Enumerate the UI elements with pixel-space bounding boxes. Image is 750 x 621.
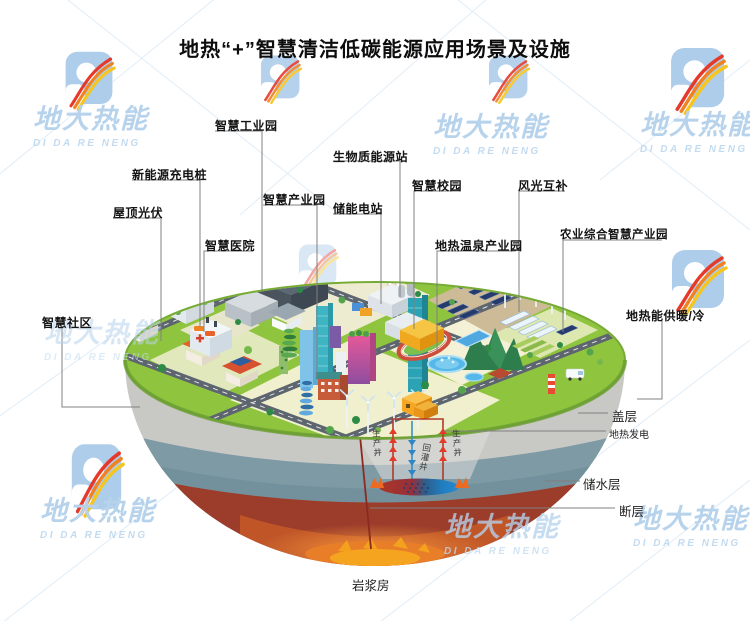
chimney-stack [548, 374, 555, 394]
label-fault: 断层 [619, 501, 644, 520]
infographic-root: 地大热能 DI DA RE NENG 地大热能 DI DA RE NENG 地大… [0, 0, 750, 621]
label-smart-community: 智慧社区 [42, 314, 92, 331]
label-geothermal-heating-cooling: 地热能供暖/冷 [626, 307, 705, 324]
label-smart-campus: 智慧校园 [412, 177, 462, 194]
label-production-well-right: 生产井 [449, 429, 463, 458]
label-geothermal-hot-spring-park: 地热温泉产业园 [435, 237, 523, 254]
label-biomass-station: 生物质能源站 [333, 148, 408, 165]
label-smart-hospital: 智慧医院 [205, 237, 255, 254]
label-wind-solar-hybrid: 风光互补 [518, 177, 568, 194]
label-rooftop-pv: 屋顶光伏 [113, 204, 163, 221]
label-cap-layer: 盖层 [612, 406, 637, 425]
label-production-well-left: 生产井 [369, 429, 383, 458]
label-reservoir-layer: 储水层 [583, 474, 621, 493]
label-agri-smart-park: 农业综合智慧产业园 [560, 226, 668, 242]
label-magma-chamber: 岩浆房 [352, 575, 390, 594]
label-smart-industry-park: 智慧产业园 [263, 191, 326, 208]
label-smart-industrial-park: 智慧工业园 [215, 117, 278, 134]
label-ev-charging: 新能源充电桩 [132, 166, 207, 183]
label-geothermal-power: 地热发电 [609, 426, 649, 441]
page-title: 地热“+”智慧清洁低碳能源应用场景及设施 [0, 33, 750, 62]
label-energy-storage-station: 储能电站 [333, 200, 383, 217]
reservoir-lens [379, 479, 459, 496]
